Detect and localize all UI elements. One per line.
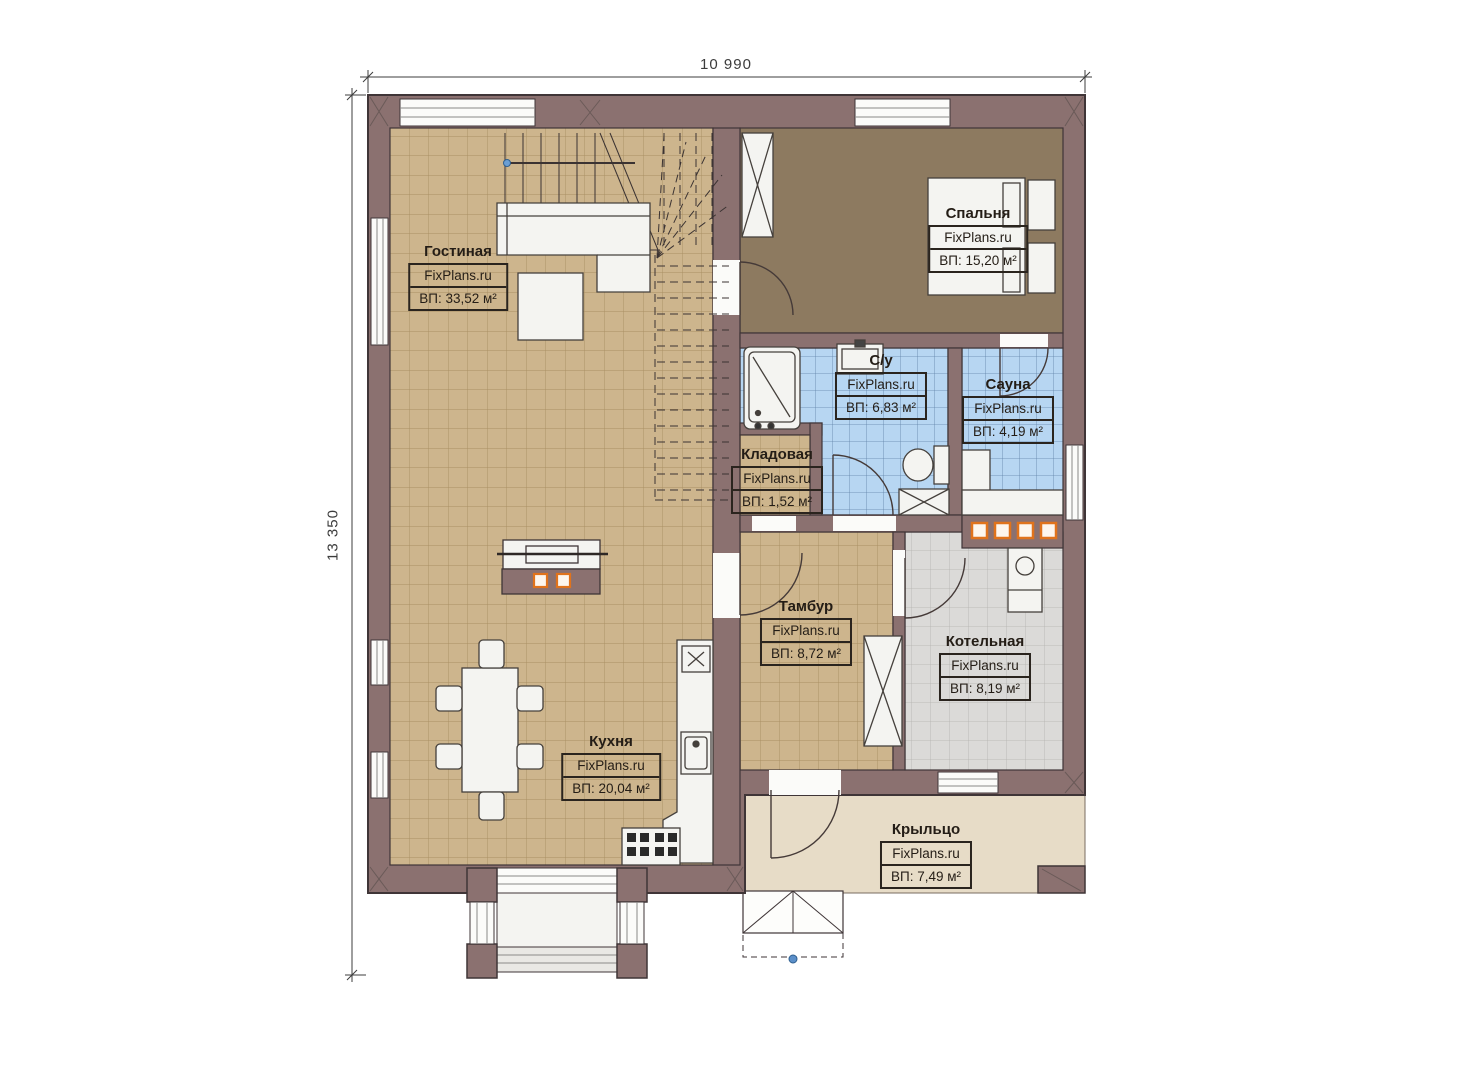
watermark: FixPlans.ru [762,620,850,643]
watermark: FixPlans.ru [882,843,970,866]
room-label-bedroom: Спальня FixPlans.ru ВП: 15,20 м² [928,205,1028,273]
room-info-box: FixPlans.ru ВП: 8,72 м² [760,618,852,666]
room-name: Крыльцо [880,821,972,838]
room-label-boiler: Котельная FixPlans.ru ВП: 8,19 м² [939,633,1031,701]
room-info-box: FixPlans.ru ВП: 7,49 м² [880,841,972,889]
room-area: ВП: 8,19 м² [941,678,1029,699]
room-label-porch: Крыльцо FixPlans.ru ВП: 7,49 м² [880,821,972,889]
floor-plan-drawing [0,0,1473,1080]
room-area: ВП: 7,49 м² [882,866,970,887]
room-area: ВП: 4,19 м² [964,421,1052,442]
watermark: FixPlans.ru [837,374,925,397]
room-area: ВП: 33,52 м² [410,288,506,309]
room-info-box: FixPlans.ru ВП: 6,83 м² [835,372,927,420]
watermark: FixPlans.ru [930,227,1026,250]
room-area: ВП: 1,52 м² [733,491,821,512]
room-area: ВП: 20,04 м² [563,778,659,799]
dimension-height-label: 13 350 [325,509,342,561]
room-name: Сауна [962,376,1054,393]
room-name: Котельная [939,633,1031,650]
sauna-heater [962,515,1063,548]
room-name: С/у [835,352,927,369]
room-label-vestibule: Тамбур FixPlans.ru ВП: 8,72 м² [760,598,852,666]
room-area: ВП: 8,72 м² [762,643,850,664]
watermark: FixPlans.ru [410,265,506,288]
room-name: Гостиная [408,243,508,260]
room-area: ВП: 15,20 м² [930,250,1026,271]
room-info-box: FixPlans.ru ВП: 8,19 м² [939,653,1031,701]
floor-plan: 10 990 13 350 Гостиная FixPlans.ru ВП: 3… [0,0,1473,1080]
dimension-width-label: 10 990 [700,56,752,73]
room-label-kitchen: Кухня FixPlans.ru ВП: 20,04 м² [561,733,661,801]
room-name: Кладовая [731,446,823,463]
room-label-living: Гостиная FixPlans.ru ВП: 33,52 м² [408,243,508,311]
fireplace [497,540,608,594]
room-name: Кухня [561,733,661,750]
room-label-sauna: Сауна FixPlans.ru ВП: 4,19 м² [962,376,1054,444]
room-label-storage: Кладовая FixPlans.ru ВП: 1,52 м² [731,446,823,514]
room-info-box: FixPlans.ru ВП: 4,19 м² [962,396,1054,444]
watermark: FixPlans.ru [941,655,1029,678]
room-info-box: FixPlans.ru ВП: 20,04 м² [561,753,661,801]
watermark: FixPlans.ru [563,755,659,778]
room-area: ВП: 6,83 м² [837,397,925,418]
room-info-box: FixPlans.ru ВП: 1,52 м² [731,466,823,514]
room-label-bathroom: С/у FixPlans.ru ВП: 6,83 м² [835,352,927,420]
room-info-box: FixPlans.ru ВП: 15,20 м² [928,225,1028,273]
room-name: Спальня [928,205,1028,222]
bay-window [467,868,647,978]
room-info-box: FixPlans.ru ВП: 33,52 м² [408,263,508,311]
watermark: FixPlans.ru [964,398,1052,421]
watermark: FixPlans.ru [733,468,821,491]
room-name: Тамбур [760,598,852,615]
